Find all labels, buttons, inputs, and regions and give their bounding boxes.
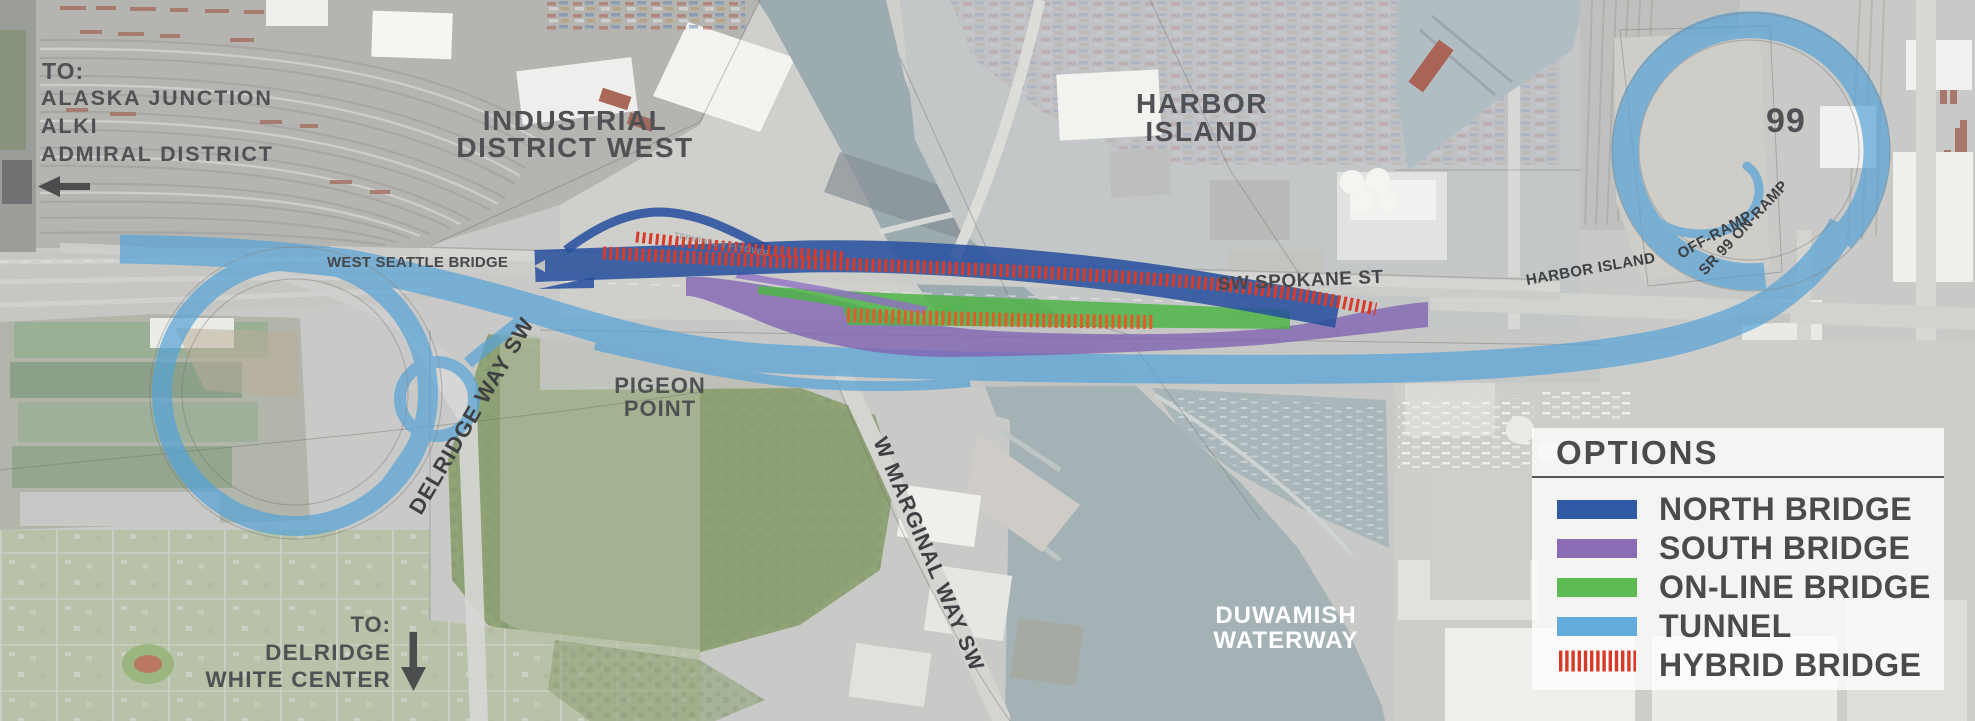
svg-text:PIGEON: PIGEON	[614, 373, 706, 398]
svg-text:ISLAND: ISLAND	[1145, 116, 1258, 147]
svg-text:POINT: POINT	[624, 396, 696, 421]
svg-text:DUWAMISH: DUWAMISH	[1215, 602, 1356, 629]
svg-text:DELRIDGE: DELRIDGE	[265, 640, 391, 665]
svg-text:WATERWAY: WATERWAY	[1214, 627, 1359, 654]
svg-text:NORTH BRIDGE: NORTH BRIDGE	[1659, 491, 1912, 527]
svg-text:ALKI: ALKI	[41, 114, 98, 138]
svg-text:ALASKA JUNCTION: ALASKA JUNCTION	[41, 86, 273, 110]
svg-text:TUNNEL: TUNNEL	[1659, 608, 1792, 644]
svg-text:TO:: TO:	[351, 612, 391, 637]
svg-text:WEST SEATTLE BRIDGE: WEST SEATTLE BRIDGE	[327, 254, 508, 271]
svg-text:SOUTH BRIDGE: SOUTH BRIDGE	[1659, 530, 1910, 566]
svg-text:WHITE CENTER: WHITE CENTER	[205, 667, 391, 692]
svg-text:ON-LINE BRIDGE: ON-LINE BRIDGE	[1659, 569, 1931, 605]
svg-text:DISTRICT WEST: DISTRICT WEST	[456, 132, 693, 163]
svg-text:OPTIONS: OPTIONS	[1556, 434, 1719, 471]
svg-text:99: 99	[1766, 102, 1806, 140]
svg-text:HARBOR: HARBOR	[1136, 88, 1268, 119]
svg-text:ADMIRAL DISTRICT: ADMIRAL DISTRICT	[41, 142, 274, 166]
svg-text:HYBRID BRIDGE: HYBRID BRIDGE	[1659, 647, 1922, 683]
svg-text:TO:: TO:	[42, 58, 84, 84]
